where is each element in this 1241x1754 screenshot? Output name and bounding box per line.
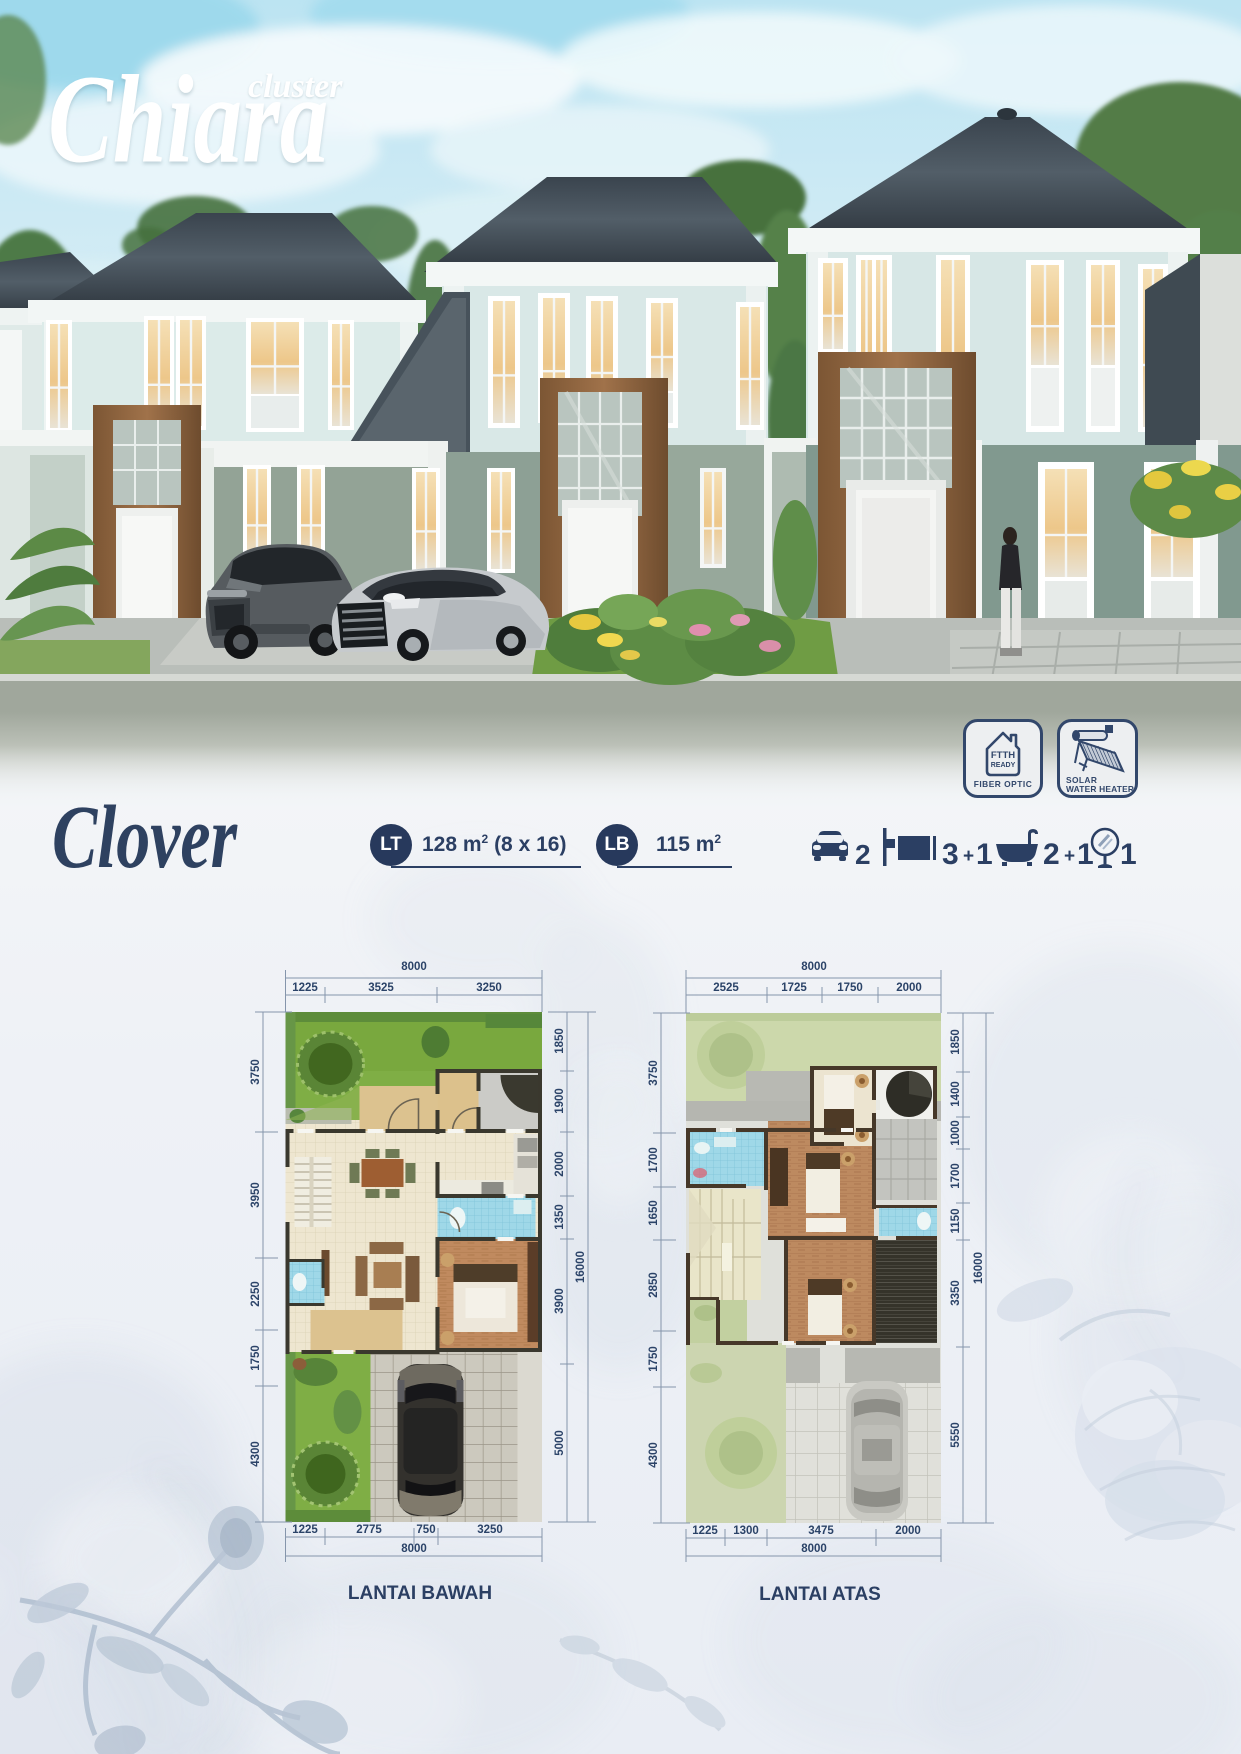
svg-text:1225: 1225 (692, 1525, 718, 1537)
svg-text:1750: 1750 (250, 1345, 262, 1371)
svg-text:1650: 1650 (648, 1200, 660, 1226)
svg-text:5000: 5000 (554, 1430, 566, 1456)
svg-text:3: 3 (942, 838, 959, 871)
svg-text:8000: 8000 (801, 961, 827, 973)
svg-text:2525: 2525 (713, 982, 739, 994)
svg-text:3475: 3475 (808, 1525, 834, 1537)
svg-text:2000: 2000 (554, 1151, 566, 1177)
svg-text:1350: 1350 (554, 1204, 566, 1230)
svg-text:1850: 1850 (950, 1029, 962, 1055)
svg-text:1: 1 (976, 838, 993, 871)
svg-text:16000: 16000 (973, 1252, 985, 1284)
svg-text:8000: 8000 (801, 1543, 827, 1555)
svg-text:1725: 1725 (781, 982, 807, 994)
svg-text:8000: 8000 (401, 1543, 427, 1555)
svg-text:4300: 4300 (250, 1441, 262, 1467)
svg-text:READY: READY (991, 762, 1016, 769)
svg-text:WATER HEATER: WATER HEATER (1066, 784, 1134, 794)
svg-text:1225: 1225 (292, 982, 318, 994)
svg-text:3350: 3350 (950, 1280, 962, 1306)
svg-text:3950: 3950 (250, 1182, 262, 1208)
svg-text:2775: 2775 (356, 1524, 382, 1536)
svg-text:1700: 1700 (648, 1147, 660, 1173)
svg-text:2250: 2250 (250, 1281, 262, 1307)
svg-text:3250: 3250 (477, 1524, 503, 1536)
svg-text:1400: 1400 (950, 1081, 962, 1107)
svg-text:2000: 2000 (896, 982, 922, 994)
svg-text:16000: 16000 (575, 1251, 587, 1283)
svg-text:2850: 2850 (648, 1272, 660, 1298)
svg-text:1750: 1750 (648, 1346, 660, 1372)
svg-text:750: 750 (416, 1524, 435, 1536)
svg-text:8000: 8000 (401, 961, 427, 973)
svg-text:1: 1 (1120, 838, 1137, 871)
svg-text:3250: 3250 (476, 982, 502, 994)
svg-text:1750: 1750 (837, 982, 863, 994)
svg-text:1225: 1225 (292, 1524, 318, 1536)
svg-text:1850: 1850 (554, 1028, 566, 1054)
svg-text:2: 2 (855, 839, 871, 870)
svg-text:2000: 2000 (895, 1525, 921, 1537)
svg-text:3750: 3750 (648, 1060, 660, 1086)
svg-text:1700: 1700 (950, 1163, 962, 1189)
svg-text:1000: 1000 (950, 1120, 962, 1146)
svg-text:FIBER OPTIC: FIBER OPTIC (974, 779, 1033, 789)
svg-text:1300: 1300 (733, 1525, 759, 1537)
svg-text:1150: 1150 (950, 1209, 962, 1234)
svg-text:+: + (963, 846, 974, 867)
svg-text:3525: 3525 (368, 982, 394, 994)
svg-text:1900: 1900 (554, 1088, 566, 1114)
svg-text:3900: 3900 (554, 1288, 566, 1314)
svg-text:+: + (1064, 846, 1075, 867)
svg-text:4300: 4300 (648, 1442, 660, 1468)
svg-text:FTTH: FTTH (991, 750, 1015, 761)
svg-text:3750: 3750 (250, 1059, 262, 1085)
svg-text:2: 2 (1043, 838, 1060, 871)
svg-text:5550: 5550 (950, 1422, 962, 1448)
